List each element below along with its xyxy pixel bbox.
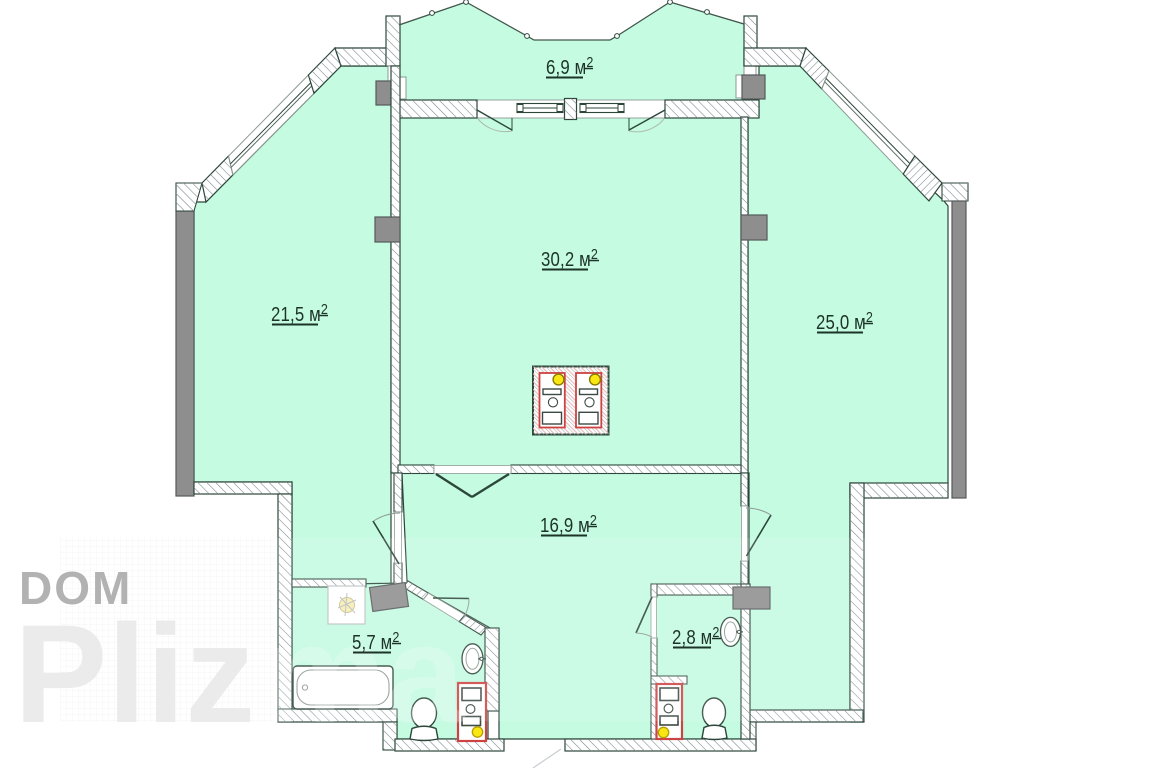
svg-text:30,2 м2: 30,2 м2	[541, 245, 598, 270]
svg-text:25,0 м2: 25,0 м2	[816, 308, 873, 333]
svg-text:21,5 м2: 21,5 м2	[271, 300, 328, 325]
svg-text:16,9 м2: 16,9 м2	[540, 511, 597, 536]
svg-text:Pliz: Pliz	[14, 595, 255, 752]
svg-text:ma: ma	[262, 595, 465, 752]
